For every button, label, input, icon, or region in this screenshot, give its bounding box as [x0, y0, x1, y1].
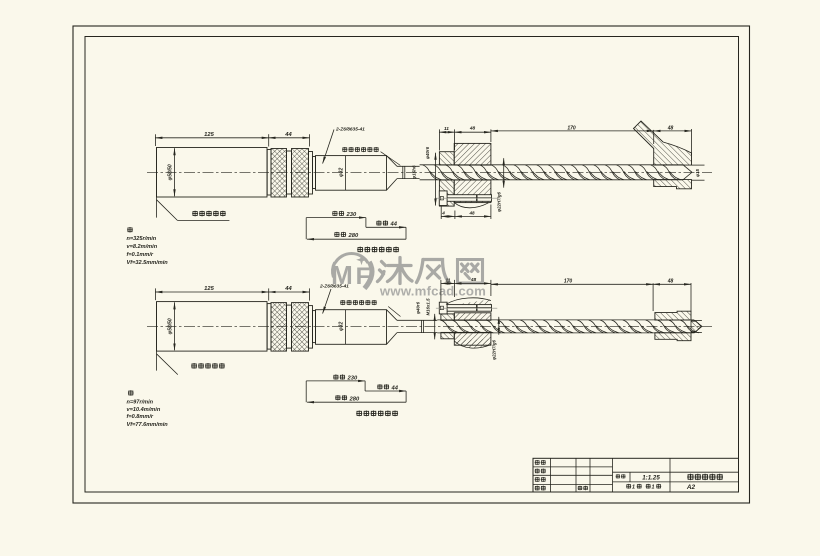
svg-text:v=8.2m/min: v=8.2m/min [127, 244, 158, 250]
svg-text:230: 230 [346, 212, 357, 218]
svg-text:Vf=77.6mm/min: Vf=77.6mm/min [127, 422, 169, 428]
svg-text:φ58/50: φ58/50 [168, 318, 174, 334]
svg-text:4: 4 [441, 210, 445, 215]
svg-text:M16x1.5: M16x1.5 [426, 298, 431, 316]
svg-text:125: 125 [204, 286, 214, 292]
svg-text:230: 230 [347, 376, 358, 382]
svg-text:280: 280 [348, 233, 359, 239]
svg-text:1:1.25: 1:1.25 [642, 474, 660, 481]
svg-text:φ15h6: φ15h6 [412, 165, 417, 179]
svg-text:f=0.1mm/r: f=0.1mm/r [127, 252, 154, 258]
svg-text:11: 11 [446, 277, 451, 283]
svg-text:48: 48 [667, 125, 674, 131]
svg-text:n=325r/min: n=325r/min [127, 236, 157, 242]
svg-text:2-Z6/8635-41: 2-Z6/8635-41 [335, 127, 365, 133]
svg-text:44: 44 [284, 132, 292, 138]
svg-text:170: 170 [567, 125, 576, 131]
svg-text:v=10.4m/min: v=10.4m/min [127, 407, 161, 413]
svg-text:48: 48 [468, 210, 475, 215]
svg-text:A2: A2 [686, 484, 696, 491]
svg-text:170: 170 [564, 279, 573, 285]
svg-text:280: 280 [349, 396, 360, 402]
svg-text:www.mfcad.com: www.mfcad.com [379, 283, 486, 298]
svg-text:φ15: φ15 [695, 168, 700, 177]
svg-text:f=0.8mm/r: f=0.8mm/r [127, 414, 154, 420]
svg-text:44: 44 [284, 286, 292, 292]
svg-text:F: F [356, 263, 371, 290]
svg-text:48: 48 [667, 279, 674, 285]
svg-text:φ32: φ32 [339, 168, 345, 177]
svg-text:44: 44 [391, 385, 399, 391]
svg-text:φ40r6: φ40r6 [425, 146, 430, 159]
svg-text:1: 1 [652, 485, 655, 491]
svg-text:Vf=32.5mm/min: Vf=32.5mm/min [127, 260, 169, 266]
svg-text:48: 48 [469, 126, 476, 132]
svg-text:φ22H7/g6: φ22H7/g6 [497, 191, 502, 211]
svg-text:φ22H7/g6: φ22H7/g6 [492, 339, 497, 359]
svg-text:1: 1 [632, 485, 635, 491]
svg-text:n=97r/min: n=97r/min [127, 400, 154, 406]
svg-text:φ58/50: φ58/50 [168, 164, 174, 180]
svg-text:φ40r6: φ40r6 [416, 301, 421, 314]
svg-text:φ32: φ32 [339, 322, 345, 331]
svg-text:125: 125 [204, 132, 214, 138]
svg-text:2-Z6/8635-41: 2-Z6/8635-41 [319, 284, 349, 290]
svg-text:44: 44 [390, 222, 398, 228]
svg-text:11: 11 [444, 126, 449, 132]
svg-text:48: 48 [470, 277, 477, 283]
